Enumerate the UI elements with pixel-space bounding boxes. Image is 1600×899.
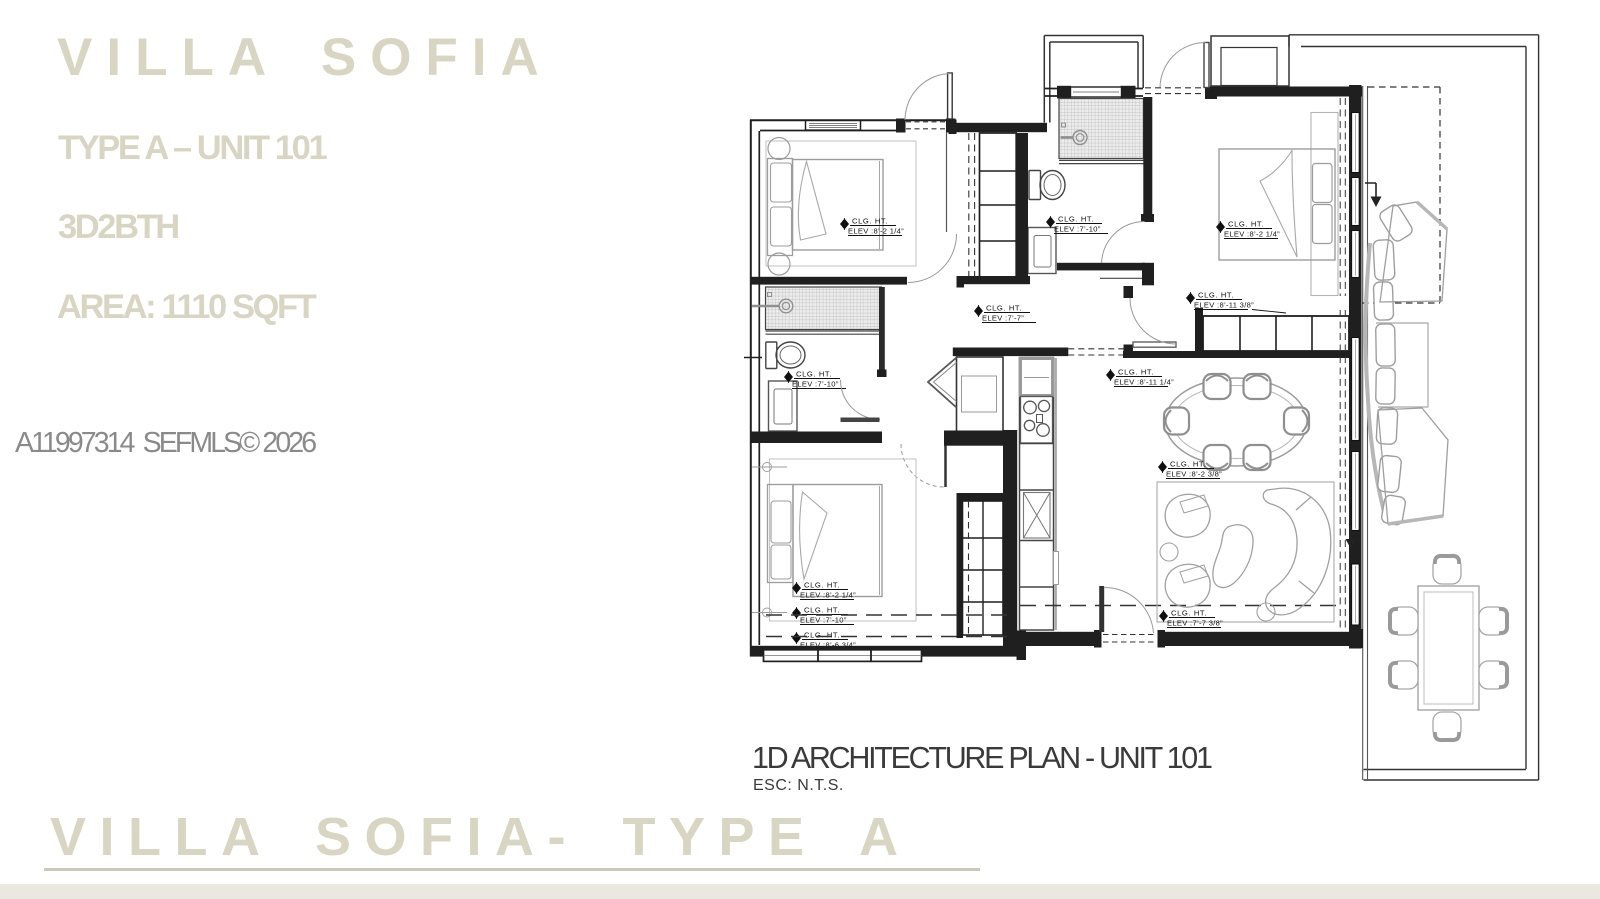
svg-text:CLG. HT.: CLG. HT. xyxy=(1198,291,1234,300)
svg-text:CLG. HT.: CLG. HT. xyxy=(796,370,832,379)
svg-text:ELEV :8’-2 1/4”: ELEV :8’-2 1/4” xyxy=(800,591,856,600)
svg-text:CLG. HT.: CLG. HT. xyxy=(1171,609,1207,618)
svg-text:ELEV :8’-2 1/4”: ELEV :8’-2 1/4” xyxy=(848,227,904,236)
svg-text:CLG. HT.: CLG. HT. xyxy=(986,304,1022,313)
svg-text:ELEV :7’-10”: ELEV :7’-10” xyxy=(792,380,839,389)
svg-text:ELEV :8’-2 3/8”: ELEV :8’-2 3/8” xyxy=(1166,470,1222,479)
svg-text:ELEV :7’-7 3/8”: ELEV :7’-7 3/8” xyxy=(1167,619,1223,628)
svg-text:ELEV :8’-2 1/4”: ELEV :8’-2 1/4” xyxy=(1224,230,1280,239)
svg-text:ELEV :8’-11 3/8”: ELEV :8’-11 3/8” xyxy=(1194,301,1254,310)
svg-text:CLG. HT.: CLG. HT. xyxy=(1058,215,1094,224)
svg-text:CLG. HT.: CLG. HT. xyxy=(804,631,840,640)
svg-text:CLG. HT.: CLG. HT. xyxy=(804,606,840,615)
svg-text:CLG. HT.: CLG. HT. xyxy=(1228,220,1264,229)
svg-text:CLG. HT.: CLG. HT. xyxy=(804,581,840,590)
svg-text:ELEV :7’-7”: ELEV :7’-7” xyxy=(982,314,1024,323)
svg-text:CLG. HT.: CLG. HT. xyxy=(1118,368,1154,377)
svg-text:ELEV :7’-10”: ELEV :7’-10” xyxy=(1054,225,1101,234)
svg-text:ELEV :8’-11 1/4”: ELEV :8’-11 1/4” xyxy=(1114,378,1174,387)
svg-text:CLG. HT.: CLG. HT. xyxy=(1170,460,1206,469)
svg-text:CLG. HT.: CLG. HT. xyxy=(852,217,888,226)
svg-text:ELEV :7’-10”: ELEV :7’-10” xyxy=(800,616,847,625)
